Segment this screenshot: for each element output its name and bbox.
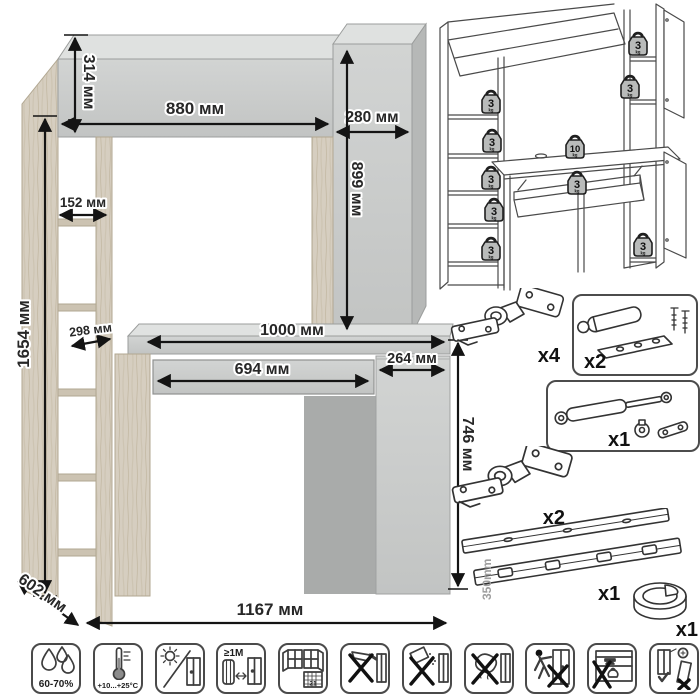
svg-text:kg: kg	[628, 93, 633, 98]
svg-text:314 мм: 314 мм	[80, 55, 97, 110]
svg-text:kg: kg	[573, 153, 578, 158]
humidity-drops-icon	[35, 646, 79, 678]
abrasive-powder-crossed-icon	[406, 646, 450, 690]
care-icon-humidity: 60-70%	[31, 643, 81, 694]
weight-3kg-right-shelf: 3 kg	[621, 76, 639, 98]
care-icon-no-sharp-objects	[340, 643, 390, 694]
svg-text:280 мм: 280 мм	[345, 109, 398, 126]
care-icon-wall-anchoring	[649, 643, 699, 694]
dimension-overall-width: 1167 мм	[87, 600, 446, 623]
distance-label: ≥1M	[224, 648, 243, 659]
hinge-top-count: x4	[538, 346, 560, 366]
thermometer-icon	[97, 646, 141, 680]
hardware-soft-close-damper: x2	[572, 294, 698, 376]
svg-text:1654 мм: 1654 мм	[14, 300, 33, 368]
svg-text:kg: kg	[492, 216, 497, 221]
svg-text:152 мм: 152 мм	[60, 195, 106, 210]
svg-text:1000 мм: 1000 мм	[260, 322, 324, 339]
hardware-gas-lift: x1	[546, 380, 700, 452]
wall-anchor-icon	[653, 646, 697, 690]
svg-text:kg: kg	[575, 189, 580, 194]
care-icon-no-abrasive-cleaners	[402, 643, 452, 694]
care-icon-heat-distance: ≥1M	[216, 643, 266, 694]
damper-count: x2	[584, 352, 606, 372]
assembly-instruction-sheet: 1654 мм 314 мм 880 мм 280 мм 899 мм 152 …	[0, 0, 700, 700]
weight-3kg-left-shelf-4: 3 kg	[485, 199, 503, 221]
person-pushing-cabinet-crossed-icon	[529, 646, 573, 690]
svg-text:kg: kg	[489, 184, 494, 189]
window-calendar-icon: 21	[282, 646, 326, 690]
svg-text:899 мм: 899 мм	[348, 162, 365, 217]
care-icon-no-direct-sunlight	[155, 643, 205, 694]
svg-text:kg: kg	[641, 251, 646, 256]
weight-3kg-left-shelf-1: 3 kg	[482, 91, 500, 113]
care-icon-no-heavy-items	[587, 643, 637, 694]
weight-3kg-left-shelf-5: 3 kg	[482, 238, 500, 260]
weight-3kg-left-shelf-2: 3 kg	[483, 130, 501, 152]
svg-text:1167 мм: 1167 мм	[237, 600, 304, 619]
weight-3kg-hutch-top-right: 3 kg	[629, 33, 647, 55]
svg-text:kg: kg	[490, 147, 495, 152]
svg-text:264 мм: 264 мм	[387, 351, 437, 367]
weight-3kg-left-shelf-3: 3 kg	[482, 167, 500, 189]
weight-10kg-desktop: 10 kg	[566, 136, 584, 158]
cable-grommet-count: x1	[676, 620, 698, 640]
svg-text:kg: kg	[489, 108, 494, 113]
hinge-icon	[450, 288, 570, 346]
furniture-dimension-drawing: 1654 мм 314 мм 880 мм 280 мм 899 мм 152 …	[0, 4, 480, 652]
gas-lift-count: x1	[608, 430, 630, 450]
weight-3kg-base-cabinet: 3 kg	[634, 234, 652, 256]
overload-crossed-icon	[591, 646, 635, 690]
svg-text:880 мм: 880 мм	[166, 99, 224, 118]
hardware-hinge-top: x4	[450, 288, 578, 368]
wet-sponge-crossed-icon	[468, 646, 512, 690]
care-icons-row: 60-70% +10...+25°C	[31, 643, 699, 696]
svg-text:kg: kg	[636, 50, 641, 55]
humidity-range-label: 60-70%	[33, 679, 79, 690]
svg-text:kg: kg	[489, 255, 494, 260]
temperature-range-label: +10...+25°C	[95, 681, 141, 690]
acclimatization-days-label: 21	[310, 681, 318, 688]
radiator-distance-icon: ≥1M	[220, 646, 264, 690]
tower-shelves	[58, 219, 96, 556]
slide-length-label: 350mm	[480, 559, 494, 600]
hinge-icon	[450, 446, 580, 508]
sun-cabinet-icon	[159, 646, 203, 690]
load-capacity-diagram: 3 kg 3 kg 3 kg 3 kg 3 kg 3 kg 3 kg	[428, 0, 700, 302]
care-icon-no-dragging	[525, 643, 575, 694]
care-icon-acclimatization: 21	[278, 643, 328, 694]
care-icon-temperature: +10...+25°C	[93, 643, 143, 694]
knife-crossed-icon	[344, 646, 388, 690]
drawer-slides-count: x1	[598, 584, 620, 604]
weight-3kg-drawer: 3 kg	[568, 172, 586, 194]
hardware-cable-grommet: x1	[620, 572, 700, 640]
svg-text:694 мм: 694 мм	[235, 361, 290, 378]
care-icon-no-wet-cleaning	[464, 643, 514, 694]
